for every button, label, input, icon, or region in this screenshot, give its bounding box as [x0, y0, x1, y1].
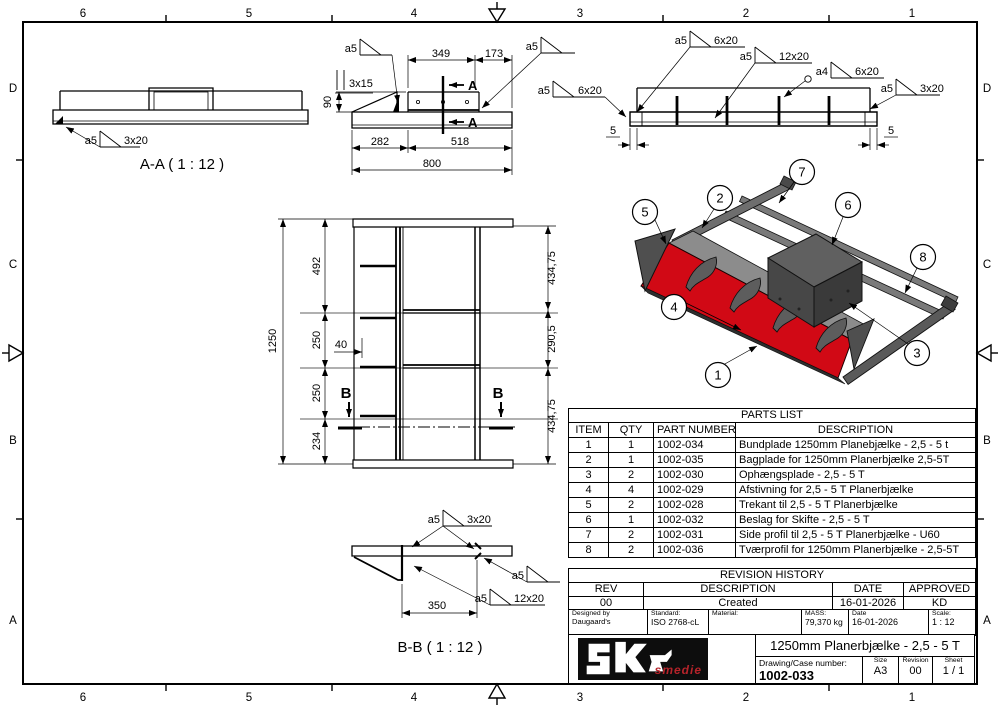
grid-col-label: 5: [246, 8, 252, 20]
section-letter: B: [341, 385, 352, 402]
cell-item: 5: [569, 498, 609, 513]
section-view-title: B-B ( 1 : 12 ): [397, 639, 482, 656]
cell-part-number: 1002-029: [654, 483, 736, 498]
cell-item: 3: [569, 468, 609, 483]
cell-part-number: 1002-032: [654, 513, 736, 528]
logo-text: smedie: [655, 663, 702, 677]
dim-label: 434,75: [546, 251, 558, 285]
grid-col-label: 4: [411, 692, 418, 704]
dim-label: 90: [322, 96, 334, 108]
cell-qty: 1: [609, 453, 654, 468]
cell-part-number: 1002-030: [654, 468, 736, 483]
parts-list-table: PARTS LIST ITEM QTY PART NUMBER DESCRIPT…: [568, 408, 976, 558]
cell-description: Afstivning for 2,5 - 5 T Planerbjælke: [736, 483, 976, 498]
grid-row-label: A: [9, 615, 17, 627]
weld-fillet: [393, 96, 399, 112]
table-row: 1 1 1002-034 Bundplade 1250mm Planebjælk…: [569, 438, 976, 453]
cell-item: 1: [569, 438, 609, 453]
mass-value: 79,370 kg: [805, 618, 845, 627]
dim-label: 492: [311, 257, 323, 275]
column-header: DESCRIPTION: [736, 423, 976, 438]
weld-label: a5: [675, 35, 687, 47]
table-row: 7 2 1002-031 Side profil til 2,5 - 5 T P…: [569, 528, 976, 543]
drawing-number-cell: Drawing/Case number: 1002-033: [755, 656, 863, 684]
cell-qty: 2: [609, 543, 654, 558]
material-cell: Material:: [709, 610, 802, 636]
cell-part-number: 1002-034: [654, 438, 736, 453]
weld-size-label: 6x20: [578, 85, 602, 97]
weld-size-label: 3x20: [124, 135, 148, 147]
table-row: 8 2 1002-036 Tværprofil for 1250mm Plane…: [569, 543, 976, 558]
revision-value: 00: [899, 665, 932, 677]
column-header: DESCRIPTION: [644, 583, 833, 597]
weld-size-label: 6x20: [855, 66, 879, 78]
view-rear: 5 5 a5 6x20 a5 6x20 a5 12x20 a4 6x20: [538, 31, 944, 150]
table-row: 3 2 1002-030 Ophængsplade - 2,5 - 5 T: [569, 468, 976, 483]
cell-qty: 2: [609, 498, 654, 513]
balloon-number: 3: [913, 346, 920, 361]
dim-label: 250: [311, 331, 323, 349]
section-letter: A: [468, 78, 478, 93]
section-letter: B: [493, 385, 504, 402]
balloon-number: 7: [798, 165, 805, 180]
column-header: REV: [569, 583, 644, 597]
drawing-title-cell: 1250mm Planerbjælke - 2,5 - 5 T: [755, 634, 975, 657]
sheet-value: 1 / 1: [933, 665, 974, 677]
cell-part-number: 1002-028: [654, 498, 736, 513]
grid-row-label: D: [983, 83, 991, 95]
weld-label: a5: [881, 83, 893, 95]
drawing-number-label: Drawing/Case number:: [759, 658, 859, 668]
weld-count-label: 3x15: [349, 78, 373, 90]
balloon-number: 4: [670, 300, 677, 315]
table-row: 4 4 1002-029 Afstivning for 2,5 - 5 T Pl…: [569, 483, 976, 498]
drawing-sheet: 6 5 4 3 2 1 6 5 4 3 2 1 D C B A D C B A: [0, 0, 1000, 707]
drawing-number: 1002-033: [759, 668, 859, 683]
weld-size-label: 12x20: [514, 593, 544, 605]
cell-item: 2: [569, 453, 609, 468]
standard-cell: Standard: ISO 2768-cL: [648, 610, 709, 636]
table-row: 6 1 1002-032 Beslag for Skifte - 2,5 - 5…: [569, 513, 976, 528]
revision-label: Revision: [899, 657, 932, 665]
dim-label: 434,75: [546, 399, 558, 433]
table-row: 5 2 1002-028 Trekant til 2,5 - 5 T Plane…: [569, 498, 976, 513]
cell-part-number: 1002-031: [654, 528, 736, 543]
grid-col-label: 2: [743, 8, 749, 20]
weld-size-label: 6x20: [714, 35, 738, 47]
cell-description: Side profil til 2,5 - 5 T Planerbjælke -…: [736, 528, 976, 543]
column-header: ITEM: [569, 423, 609, 438]
weld-label: a5: [85, 135, 97, 147]
view-section-bb: 350 a5 3x20 a5 a5 12x20 B-B ( 1 : 12 ): [352, 510, 560, 656]
grid-row-label: C: [983, 259, 991, 271]
company-logo: smedie: [578, 638, 708, 680]
weld-fillet: [55, 116, 63, 124]
weld-size-label: 12x20: [779, 51, 809, 63]
grid-row-label: B: [9, 435, 17, 447]
dim-label: 1250: [267, 329, 279, 353]
view-front: B B 492 250 250 234 1250 40: [267, 219, 558, 468]
cell-qty: 1: [609, 513, 654, 528]
drawing-title: 1250mm Planerbjælke - 2,5 - 5 T: [756, 635, 974, 656]
cell-item: 6: [569, 513, 609, 528]
weld-size-label: 3x20: [920, 83, 944, 95]
grid-col-label: 3: [577, 8, 583, 20]
balloon-number: 6: [844, 198, 851, 213]
scale-value: 1 : 12: [932, 618, 972, 628]
grid-col-label: 6: [80, 692, 86, 704]
date-cell: Date 16-01-2026: [849, 610, 929, 636]
balloon-number: 2: [716, 191, 723, 206]
dim-label: 5: [610, 125, 616, 137]
grid-col-label: 2: [743, 692, 749, 704]
weld-label: a5: [428, 514, 440, 526]
dim-label: 800: [423, 158, 441, 170]
grid-col-label: 1: [909, 8, 915, 20]
sheet-cell: Sheet 1 / 1: [932, 656, 975, 684]
weld-label: a5: [512, 570, 524, 582]
cell-description: Trekant til 2,5 - 5 T Planerbjælke: [736, 498, 976, 513]
column-header: QTY: [609, 423, 654, 438]
grid-row-label: A: [983, 615, 991, 627]
cell-item: 4: [569, 483, 609, 498]
material-label: Material:: [712, 610, 798, 618]
cell-description: Bundplade 1250mm Planebjælke - 2,5 - 5 t: [736, 438, 976, 453]
logo-cell: smedie: [568, 634, 756, 684]
revision-history-title: REVISION HISTORY: [569, 569, 976, 583]
grid-col-label: 3: [577, 692, 583, 704]
sheet-label: Sheet: [933, 657, 974, 665]
mass-cell: MASS: 79,370 kg: [802, 610, 849, 636]
dim-label: 282: [371, 136, 389, 148]
grid-row-label: C: [9, 259, 17, 271]
dim-label: 290,5: [546, 325, 558, 353]
cell-qty: 1: [609, 438, 654, 453]
dim-label: 234: [311, 432, 323, 450]
parts-list-title: PARTS LIST: [569, 409, 976, 423]
weld-label: a5: [740, 51, 752, 63]
date-value: 16-01-2026: [852, 618, 925, 628]
grid-row-label: B: [983, 435, 991, 447]
column-header: APPROVED: [904, 583, 976, 597]
balloon-number: 1: [714, 368, 721, 383]
weld-label: a5: [475, 593, 487, 605]
dim-label: 518: [451, 136, 469, 148]
cell-description: Tværprofil for 1250mm Planerbjælke - 2,5…: [736, 543, 976, 558]
weld-label: a5: [538, 85, 550, 97]
weld-size-label: 3x20: [467, 514, 491, 526]
cell-qty: 2: [609, 468, 654, 483]
designed-by-cell: Designed by Daugaard's: [569, 610, 648, 636]
weld-label: a5: [345, 43, 357, 55]
section-view-title: A-A ( 1 : 12 ): [140, 156, 224, 173]
column-header: DATE: [833, 583, 904, 597]
size-value: A3: [863, 665, 898, 677]
standard-value: ISO 2768-cL: [651, 618, 705, 627]
grid-row-label: D: [9, 83, 17, 95]
table-row: 2 1 1002-035 Bagplade for 1250mm Planerb…: [569, 453, 976, 468]
cell-qty: 4: [609, 483, 654, 498]
revision-history-table: REVISION HISTORY REV DESCRIPTION DATE AP…: [568, 568, 976, 611]
view-isometric: 1 2 3 4 5 6 7 8: [633, 160, 959, 388]
cell-description: Beslag for Skifte - 2,5 - 5 T: [736, 513, 976, 528]
dim-label: 40: [335, 339, 347, 351]
grid-col-label: 6: [80, 8, 86, 20]
cell-part-number: 1002-035: [654, 453, 736, 468]
section-letter: A: [468, 115, 478, 130]
size-cell: Size A3: [862, 656, 899, 684]
dim-label: 5: [888, 125, 894, 137]
dim-label: 173: [485, 48, 503, 60]
grid-col-label: 1: [909, 692, 915, 704]
revision-cell: Revision 00: [898, 656, 933, 684]
dim-label: 350: [428, 600, 446, 612]
size-label: Size: [863, 657, 898, 665]
view-section-aa: a5 3x20 A-A ( 1 : 12 ): [53, 88, 308, 173]
scale-cell: Scale: 1 : 12: [929, 610, 976, 636]
column-header: PART NUMBER: [654, 423, 736, 438]
dim-label: 349: [432, 48, 450, 60]
dim-label: 250: [311, 384, 323, 402]
cell-description: Ophængsplade - 2,5 - 5 T: [736, 468, 976, 483]
weld-label: a4: [816, 66, 828, 78]
cell-part-number: 1002-036: [654, 543, 736, 558]
balloon-number: 5: [641, 205, 648, 220]
weld-label: a5: [526, 41, 538, 53]
cell-qty: 2: [609, 528, 654, 543]
grid-col-label: 4: [411, 8, 418, 20]
balloon-number: 8: [919, 250, 926, 265]
cell-item: 8: [569, 543, 609, 558]
grid-col-label: 5: [246, 692, 252, 704]
title-block-info-row: Designed by Daugaard's Standard: ISO 276…: [568, 609, 976, 636]
cell-description: Bagplade for 1250mm Planerbjælke 2,5-5T: [736, 453, 976, 468]
designed-by-value: Daugaard's: [572, 618, 644, 626]
cell-item: 7: [569, 528, 609, 543]
view-side-800: A A 349 173 282 518 800 90 3x15: [322, 37, 575, 175]
